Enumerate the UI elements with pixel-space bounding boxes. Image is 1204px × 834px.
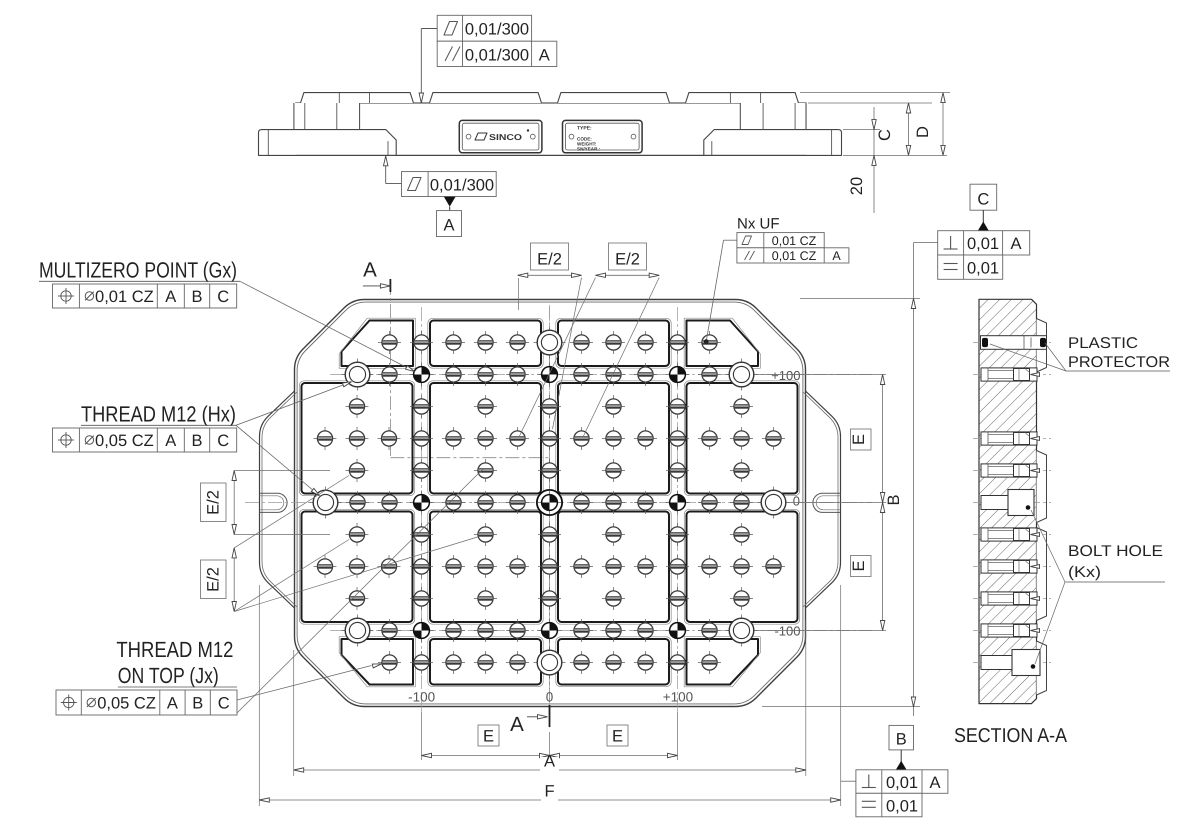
svg-text:THREAD M12: THREAD M12 (116, 637, 233, 662)
svg-text:SN/YEAR.:: SN/YEAR.: (577, 147, 601, 152)
svg-text:B: B (885, 494, 903, 505)
svg-text:E: E (850, 560, 868, 571)
svg-text:-100: -100 (774, 624, 800, 639)
svg-text:0,05 CZ: 0,05 CZ (95, 432, 154, 450)
svg-text:A: A (544, 753, 555, 771)
svg-text:B: B (192, 695, 203, 713)
svg-text:E: E (612, 728, 623, 746)
svg-text:A: A (1010, 235, 1021, 253)
svg-text:A: A (167, 695, 178, 713)
svg-text:+100: +100 (771, 368, 800, 383)
svg-text:-100: -100 (408, 690, 435, 705)
svg-text:B: B (896, 731, 907, 749)
svg-text:SECTION A-A: SECTION A-A (954, 725, 1068, 747)
svg-text:0,01: 0,01 (967, 235, 999, 253)
svg-text:Nx UF: Nx UF (737, 216, 780, 233)
svg-text:D: D (914, 126, 932, 138)
svg-text:0: 0 (793, 494, 800, 509)
svg-text:A: A (443, 216, 454, 234)
svg-text:A: A (510, 713, 524, 736)
svg-text:C: C (217, 288, 229, 306)
svg-text:0,05 CZ: 0,05 CZ (97, 695, 156, 713)
svg-text:MULTIZERO POINT (Gx): MULTIZERO POINT (Gx) (39, 258, 237, 283)
svg-text:0,01 CZ: 0,01 CZ (772, 234, 817, 248)
svg-text:0,01/300: 0,01/300 (465, 21, 529, 39)
svg-text:E/2: E/2 (615, 251, 640, 269)
svg-text:E/2: E/2 (205, 567, 223, 592)
svg-text:PROTECTOR: PROTECTOR (1068, 354, 1170, 371)
svg-text:C: C (218, 695, 230, 713)
svg-text:A: A (539, 46, 550, 64)
svg-text:ON TOP (Jx): ON TOP (Jx) (118, 663, 219, 688)
svg-text:SINCO: SINCO (489, 132, 522, 142)
svg-text:BOLT HOLE: BOLT HOLE (1068, 543, 1163, 560)
svg-text:0,01 CZ: 0,01 CZ (95, 288, 154, 306)
svg-text:20: 20 (848, 177, 866, 195)
svg-text:A: A (165, 432, 176, 450)
svg-text:F: F (544, 783, 554, 801)
svg-text:C: C (977, 191, 989, 209)
svg-text:A: A (832, 249, 841, 263)
svg-text:B: B (191, 432, 202, 450)
svg-text:0,01 CZ: 0,01 CZ (772, 249, 817, 263)
svg-text:0,01/300: 0,01/300 (465, 46, 529, 64)
svg-text:C: C (876, 129, 894, 141)
svg-text:A: A (165, 288, 176, 306)
svg-text:0,01: 0,01 (886, 797, 918, 815)
svg-text:PLASTIC: PLASTIC (1068, 335, 1138, 352)
svg-text:0: 0 (546, 690, 554, 705)
svg-text:+100: +100 (663, 690, 693, 705)
svg-text:TYPE:: TYPE: (577, 126, 592, 132)
svg-text:THREAD M12 (Hx): THREAD M12 (Hx) (81, 401, 236, 426)
svg-text:0,01: 0,01 (967, 259, 999, 277)
svg-text:B: B (191, 288, 202, 306)
svg-text:E/2: E/2 (205, 490, 223, 515)
svg-text:C: C (217, 432, 229, 450)
svg-text:A: A (929, 774, 940, 792)
svg-text:E/2: E/2 (537, 251, 562, 269)
svg-text:(Kx): (Kx) (1068, 564, 1101, 581)
svg-text:A: A (363, 259, 377, 282)
svg-text:E: E (850, 434, 868, 445)
svg-text:E: E (483, 728, 494, 746)
svg-text:0,01/300: 0,01/300 (430, 176, 494, 194)
svg-text:0,01: 0,01 (886, 774, 918, 792)
